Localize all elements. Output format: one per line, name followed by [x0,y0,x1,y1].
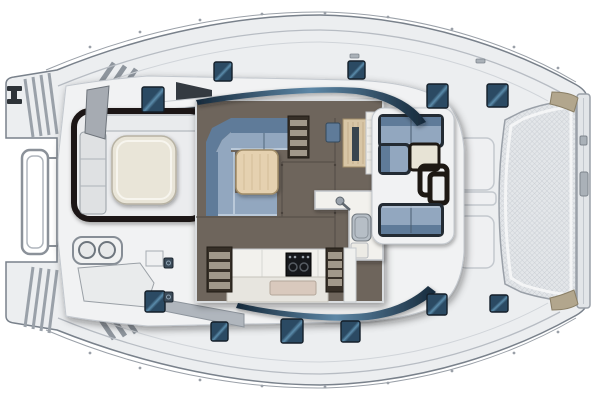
grill-burner-left [79,242,95,258]
deck-hatch [348,61,365,79]
deck-hatch [341,321,360,342]
cockpit-bench-left [80,132,106,214]
rail-stanchion [139,367,142,370]
rail-stanchion [387,382,390,385]
rail-stanchion [451,370,454,373]
galley-tray [270,281,316,295]
deck-hatch [281,319,303,343]
deck-hatch [490,295,508,312]
forward-cockpit [372,108,454,244]
helm-seat [85,86,109,139]
rail-stanchion [261,385,264,388]
rail-stanchion [139,31,142,34]
deck-hatch [142,87,164,112]
stern-boarding-rail [22,150,58,254]
galley-cabinet-strip [344,248,356,302]
cockpit-bench-top [95,115,201,131]
table-step-frame-inner [430,174,447,203]
port-companionway-steps [207,247,232,292]
deck-plan-svg [0,0,600,400]
rail-stanchion [324,386,327,389]
nav-station-seat [326,123,340,142]
rail-stanchion [324,12,327,15]
deck-fitting [164,258,173,268]
rail-stanchion [557,67,560,70]
rail-stanchion [513,352,516,355]
rail-stanchion [199,19,202,22]
galley-counter [227,249,328,302]
rail-stanchion [261,13,264,16]
rail-cleat [350,54,359,58]
rail-stanchion [199,379,202,382]
deck-fitting [164,292,173,302]
deck-hatch [427,294,447,315]
rail-stanchion [89,352,92,355]
sofa-seat-bottom [218,193,277,216]
saloon-coffee-table [236,150,278,194]
forward-sofa-lower [378,203,444,237]
nav-panel [352,127,359,161]
galley-companionway-steps [326,248,344,292]
starboard-companionway-steps [288,116,309,158]
deck-hatch [211,322,228,341]
deck-hatch [427,84,448,108]
crossbeam-fitting [580,172,588,196]
crossbeam-fitting-small [580,136,587,145]
rail-stanchion [451,28,454,31]
grill-burner-right [99,242,115,258]
cockpit-dining-table [112,136,176,204]
catamaran-deck-plan [0,0,600,400]
deck-hatch [145,291,165,312]
bow-area [499,92,590,310]
rail-stanchion [557,331,560,334]
wet-bar-box [146,251,163,266]
cockpit-coaming [78,263,154,307]
rail-stanchion [89,46,92,49]
deck-hatch [487,84,508,107]
saloon [196,100,383,302]
sofa-back-left [206,152,218,216]
deck-hatch [214,62,232,81]
rail-stanchion [513,46,516,49]
rail-stanchion [387,16,390,19]
rail-cleat [476,59,485,63]
